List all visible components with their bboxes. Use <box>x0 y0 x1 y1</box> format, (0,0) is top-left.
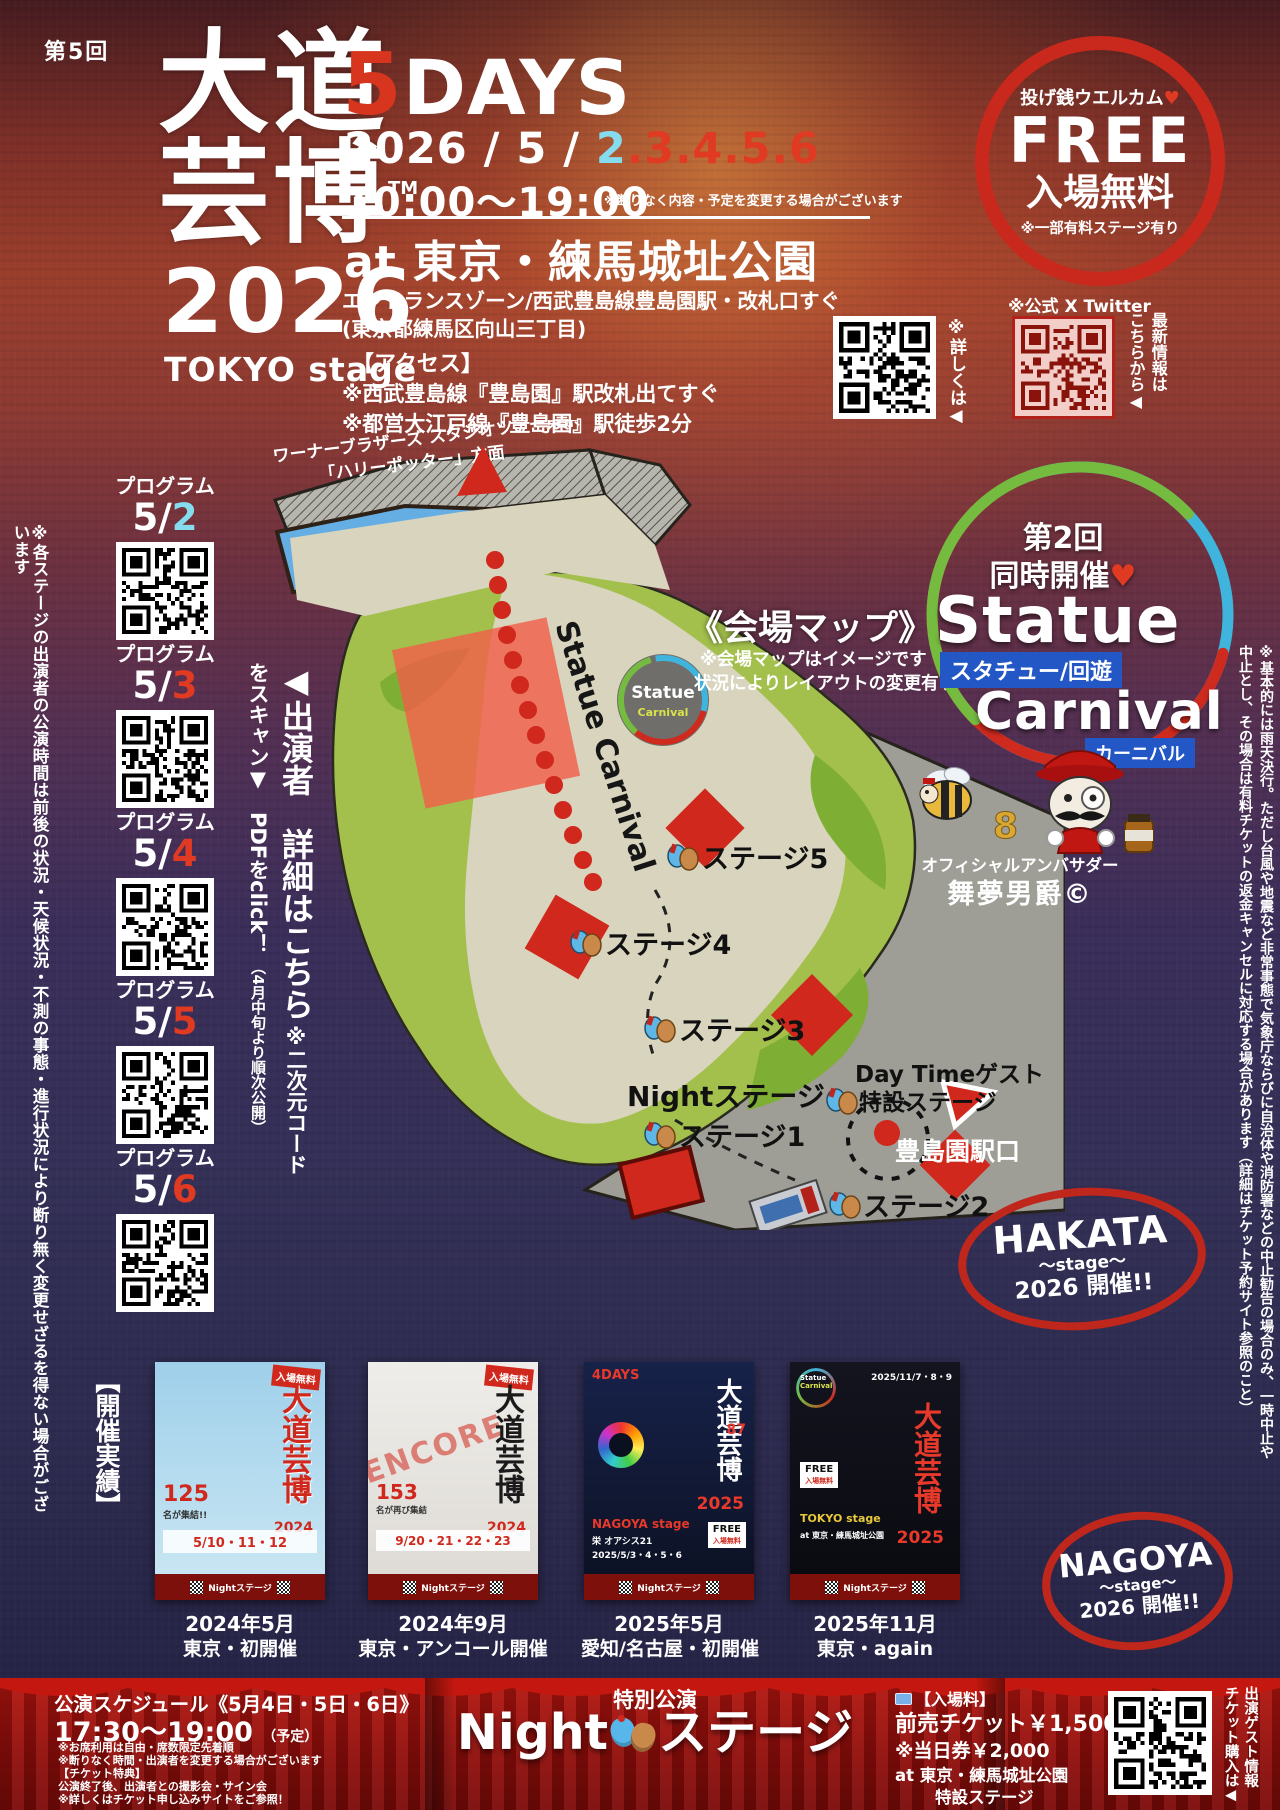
mini-qr <box>706 1581 719 1594</box>
qr-code-program-5-6 <box>116 1214 214 1312</box>
ticket-qr-note: 出演ゲスト情報 チケット購入は◀ <box>1220 1686 1259 1804</box>
masks-icon <box>610 1715 656 1753</box>
program-5-2: プログラム 5/2 <box>98 470 232 640</box>
venue-line: at 東京・練馬城址公園 <box>344 226 818 290</box>
mini-qr <box>825 1581 838 1594</box>
weather-disclaimer: ※基本的には雨天決行。ただし台風や地震など非常事態で気象庁ならびに自治体や消防署… <box>1228 645 1276 1470</box>
program-5-4: プログラム 5/4 <box>98 806 232 976</box>
stage4-label: ステージ4 <box>605 930 731 961</box>
svg-text:Statue: Statue <box>631 683 695 703</box>
time-note: ※断りなく内容・予定を変更する場合がございます <box>604 190 903 209</box>
poster-caption: 2024年5月 <box>145 1608 335 1637</box>
history-label: 【開催実績】 <box>88 1368 124 1588</box>
mini-qr <box>277 1581 290 1594</box>
qr-code-program-5-5 <box>116 1046 214 1144</box>
night-stage-title: Nightステージ <box>420 1708 890 1757</box>
mascot-illustration: 8 <box>885 742 1175 854</box>
poster-caption: 2025年11月 <box>780 1608 970 1637</box>
divider-line <box>342 216 870 219</box>
station-label: 豊島園駅口 <box>895 1137 1020 1166</box>
free-admission-badge: 投げ銭ウエルカム♥ FREE 入場無料 ※一部有料ステージ有り <box>975 36 1225 286</box>
stage2-label: ステージ2 <box>863 1192 989 1223</box>
poster-caption: 2025年5月 <box>574 1608 764 1637</box>
mini-qr <box>403 1581 416 1594</box>
stage3-label: ステージ3 <box>679 1016 805 1047</box>
event-poster: 第5回 大道 芸博TM 2026 TOKYO stage 5DAYS 2026 … <box>0 0 1280 1810</box>
map-note1: ※会場マップはイメージです <box>700 646 927 671</box>
free-note: ※一部有料ステージ有り <box>1021 217 1180 238</box>
qr-code-program-5-3 <box>116 710 214 808</box>
edition-label: 第5回 <box>44 34 109 66</box>
x-note: 最新情報は こちらから◀ <box>1124 312 1169 424</box>
special-stage-label: 特設ステージ <box>859 1089 997 1116</box>
statue-name: Statue <box>935 584 1180 658</box>
qr-code-program-5-2 <box>116 542 214 640</box>
night-stage-bar: 公演スケジュール《5月4日・5日・6日》 17:30～19:00 （予定） ※お… <box>0 1678 1280 1810</box>
mini-qr <box>619 1581 632 1594</box>
price-advance: 前売チケット￥1,500 <box>895 1706 1119 1738</box>
mini-qr <box>490 1581 503 1594</box>
venue-sub1: エントランスゾーン/西武豊島線豊島園駅・改札口すぐ <box>342 284 840 314</box>
history-poster-2025-05: 4DAYS 大道芸博 2025 87 NAGOYA stage 栄 オアシス21… <box>584 1362 754 1600</box>
mini-qr <box>912 1581 925 1594</box>
night-note-5: ※詳しくはチケット申し込みサイトをご参照！ <box>58 1794 289 1807</box>
stage1-label: ステージ1 <box>679 1122 805 1153</box>
history-poster-2024-09: 入場無料 ENCORE 大道芸博 2024 153 名が再び集結 9/20・21… <box>368 1362 538 1600</box>
free-jp: 入場無料 <box>1026 172 1174 215</box>
free-en: FREE <box>1009 110 1192 172</box>
price-door: ※当日券￥2,000 <box>895 1736 1050 1763</box>
qr-code-details <box>833 316 936 419</box>
program-5-3: プログラム 5/3 <box>98 638 232 808</box>
poster-caption: 愛知/名古屋・初開催 <box>560 1634 780 1661</box>
daytime-guest-label: Day Timeゲスト <box>855 1062 1044 1088</box>
baron-mascot <box>1036 751 1153 853</box>
bee-icon <box>920 765 972 819</box>
mascot-number-8: 8 <box>993 806 1018 847</box>
mascot-name: 舞夢男爵© <box>885 872 1155 911</box>
qr-code-program-5-4 <box>116 878 214 976</box>
venue-sub2: (東京都練馬区向山三丁目) <box>342 312 586 342</box>
poster-caption: 東京・アンコール開催 <box>338 1634 568 1661</box>
map-title: 《会場マップ》 <box>688 600 933 651</box>
qr-details-note: ※詳しくは◀ <box>944 318 969 430</box>
carnival-name: Carnival <box>975 682 1224 742</box>
program-5-6: プログラム 5/6 <box>98 1142 232 1312</box>
poster-caption: 2024年9月 <box>358 1608 548 1637</box>
qr-code-tickets <box>1108 1691 1212 1795</box>
days-headline: 5DAYS <box>342 42 631 128</box>
program-5-5: プログラム 5/5 <box>98 974 232 1144</box>
ticket-icon <box>895 1693 912 1705</box>
price-stage: 特設ステージ <box>935 1784 1034 1808</box>
mini-qr <box>190 1581 203 1594</box>
qr-code-x-twitter <box>1012 316 1115 419</box>
night-stage-label: Nightステージ <box>627 1080 825 1113</box>
poster-caption: 東京・again <box>780 1634 970 1661</box>
date-line: 2026 / 5 / 2.3.4.5.6 <box>344 124 820 174</box>
svg-text:Carnival: Carnival <box>638 706 689 719</box>
history-poster-2024-05: 入場無料 大道芸博 2024 125 名が集結!! 5/10・11・12 Nig… <box>155 1362 325 1600</box>
poster-caption: 東京・初開催 <box>145 1634 335 1661</box>
access-title: 【アクセス】 <box>352 346 483 378</box>
left-schedule-disclaimer: ※各ステージの出演者の公演時間は前後の状況・天候状況・不測の事態・進行状況により… <box>10 524 48 1514</box>
stage5-label: ステージ5 <box>702 844 828 875</box>
price-venue: at 東京・練馬城址公園 <box>895 1762 1068 1786</box>
access-line1: ※西武豊島線『豊島園』駅改札出てすぐ <box>342 378 719 408</box>
history-poster-2025-11: StatueCarnival 2025/11/7・8・9 大道芸博 2025 T… <box>790 1362 960 1600</box>
